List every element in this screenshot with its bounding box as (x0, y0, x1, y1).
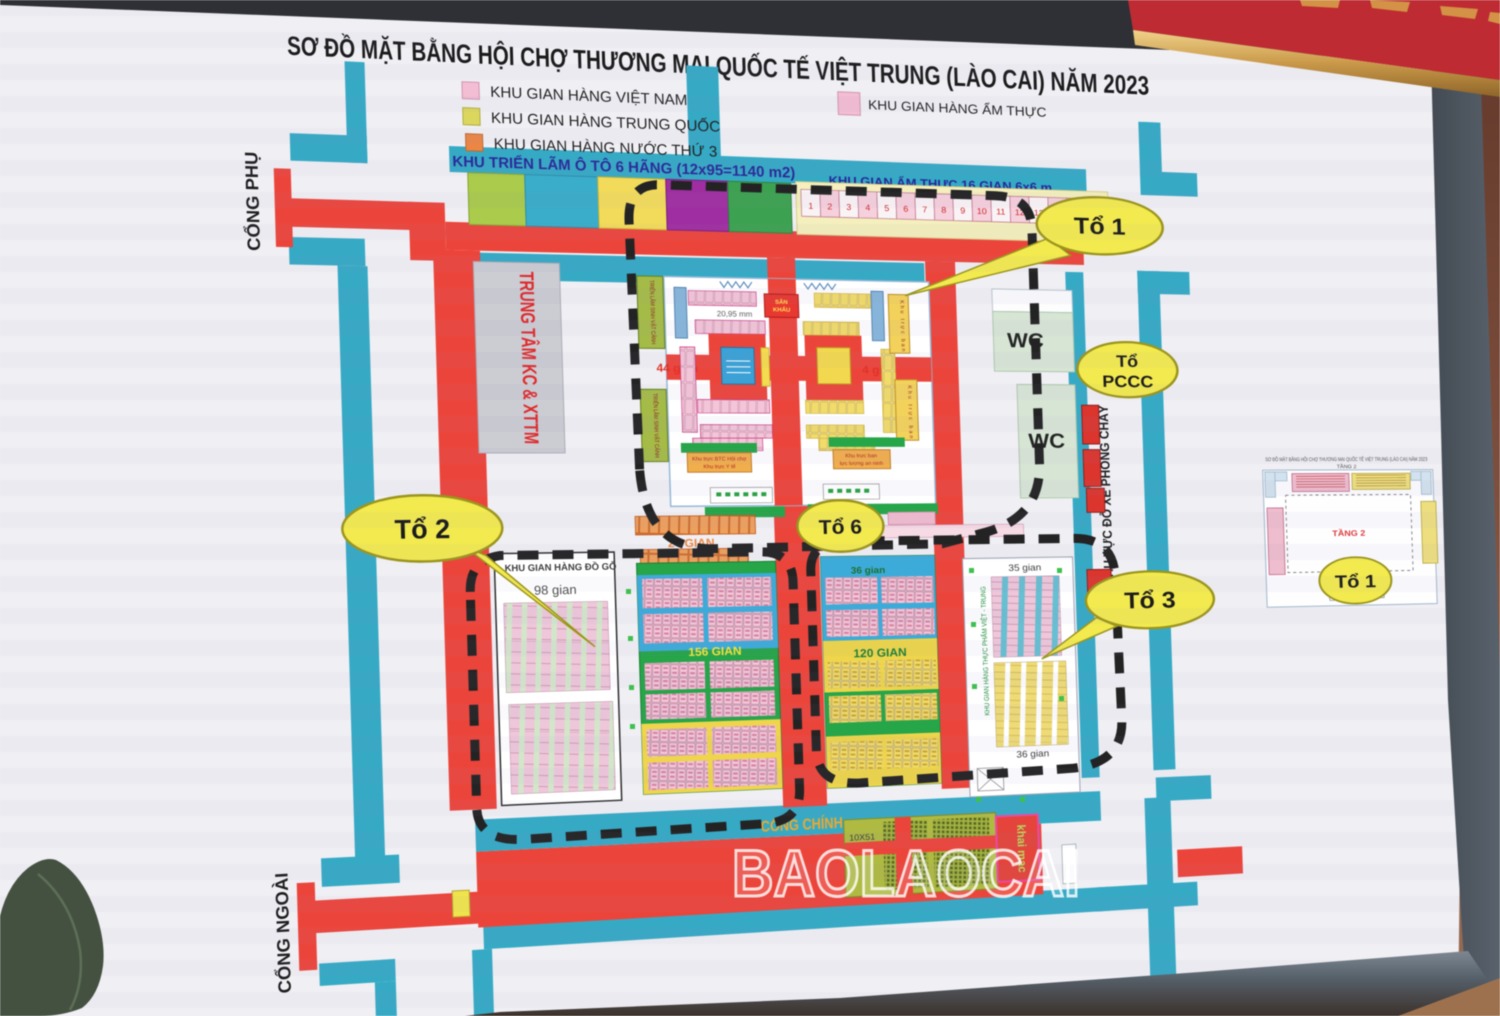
svg-text:BAOLAOCAI: BAOLAOCAI (732, 836, 1080, 910)
